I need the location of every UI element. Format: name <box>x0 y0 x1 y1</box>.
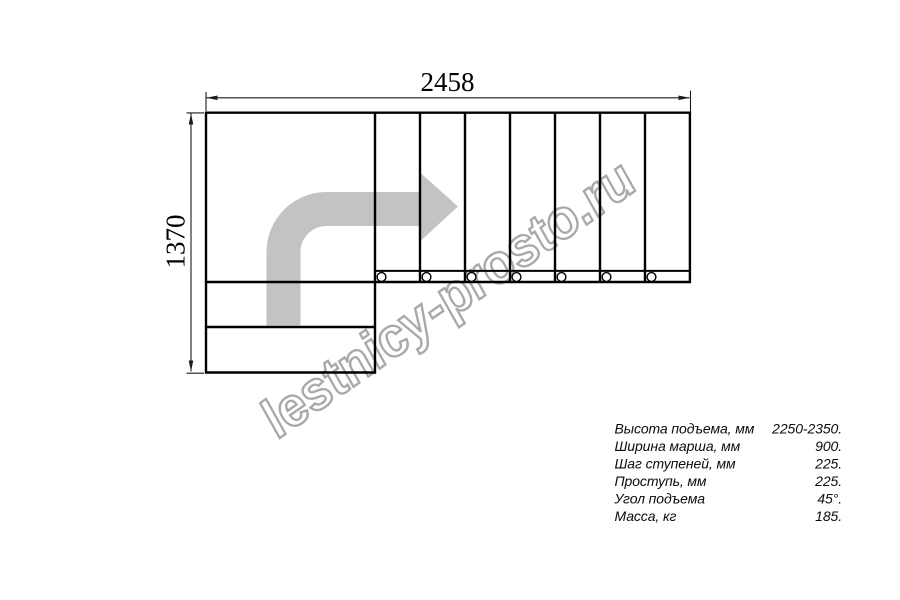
svg-text:225.: 225. <box>814 456 842 472</box>
svg-text:1370: 1370 <box>161 215 191 269</box>
svg-text:Угол подъема: Угол подъема <box>614 491 706 507</box>
svg-text:2250-2350.: 2250-2350. <box>771 421 842 437</box>
svg-text:Проступь, мм: Проступь, мм <box>615 473 707 489</box>
svg-text:Ширина марша, мм: Ширина марша, мм <box>615 438 741 454</box>
svg-text:900.: 900. <box>815 438 842 454</box>
svg-text:Высота подъема, мм: Высота подъема, мм <box>615 421 755 437</box>
svg-text:185.: 185. <box>815 508 842 524</box>
svg-text:225.: 225. <box>814 473 842 489</box>
svg-text:45°.: 45°. <box>817 491 842 507</box>
svg-text:2458: 2458 <box>421 67 475 97</box>
svg-text:Шаг ступеней, мм: Шаг ступеней, мм <box>615 456 736 472</box>
svg-text:Масса, кг: Масса, кг <box>615 508 677 524</box>
